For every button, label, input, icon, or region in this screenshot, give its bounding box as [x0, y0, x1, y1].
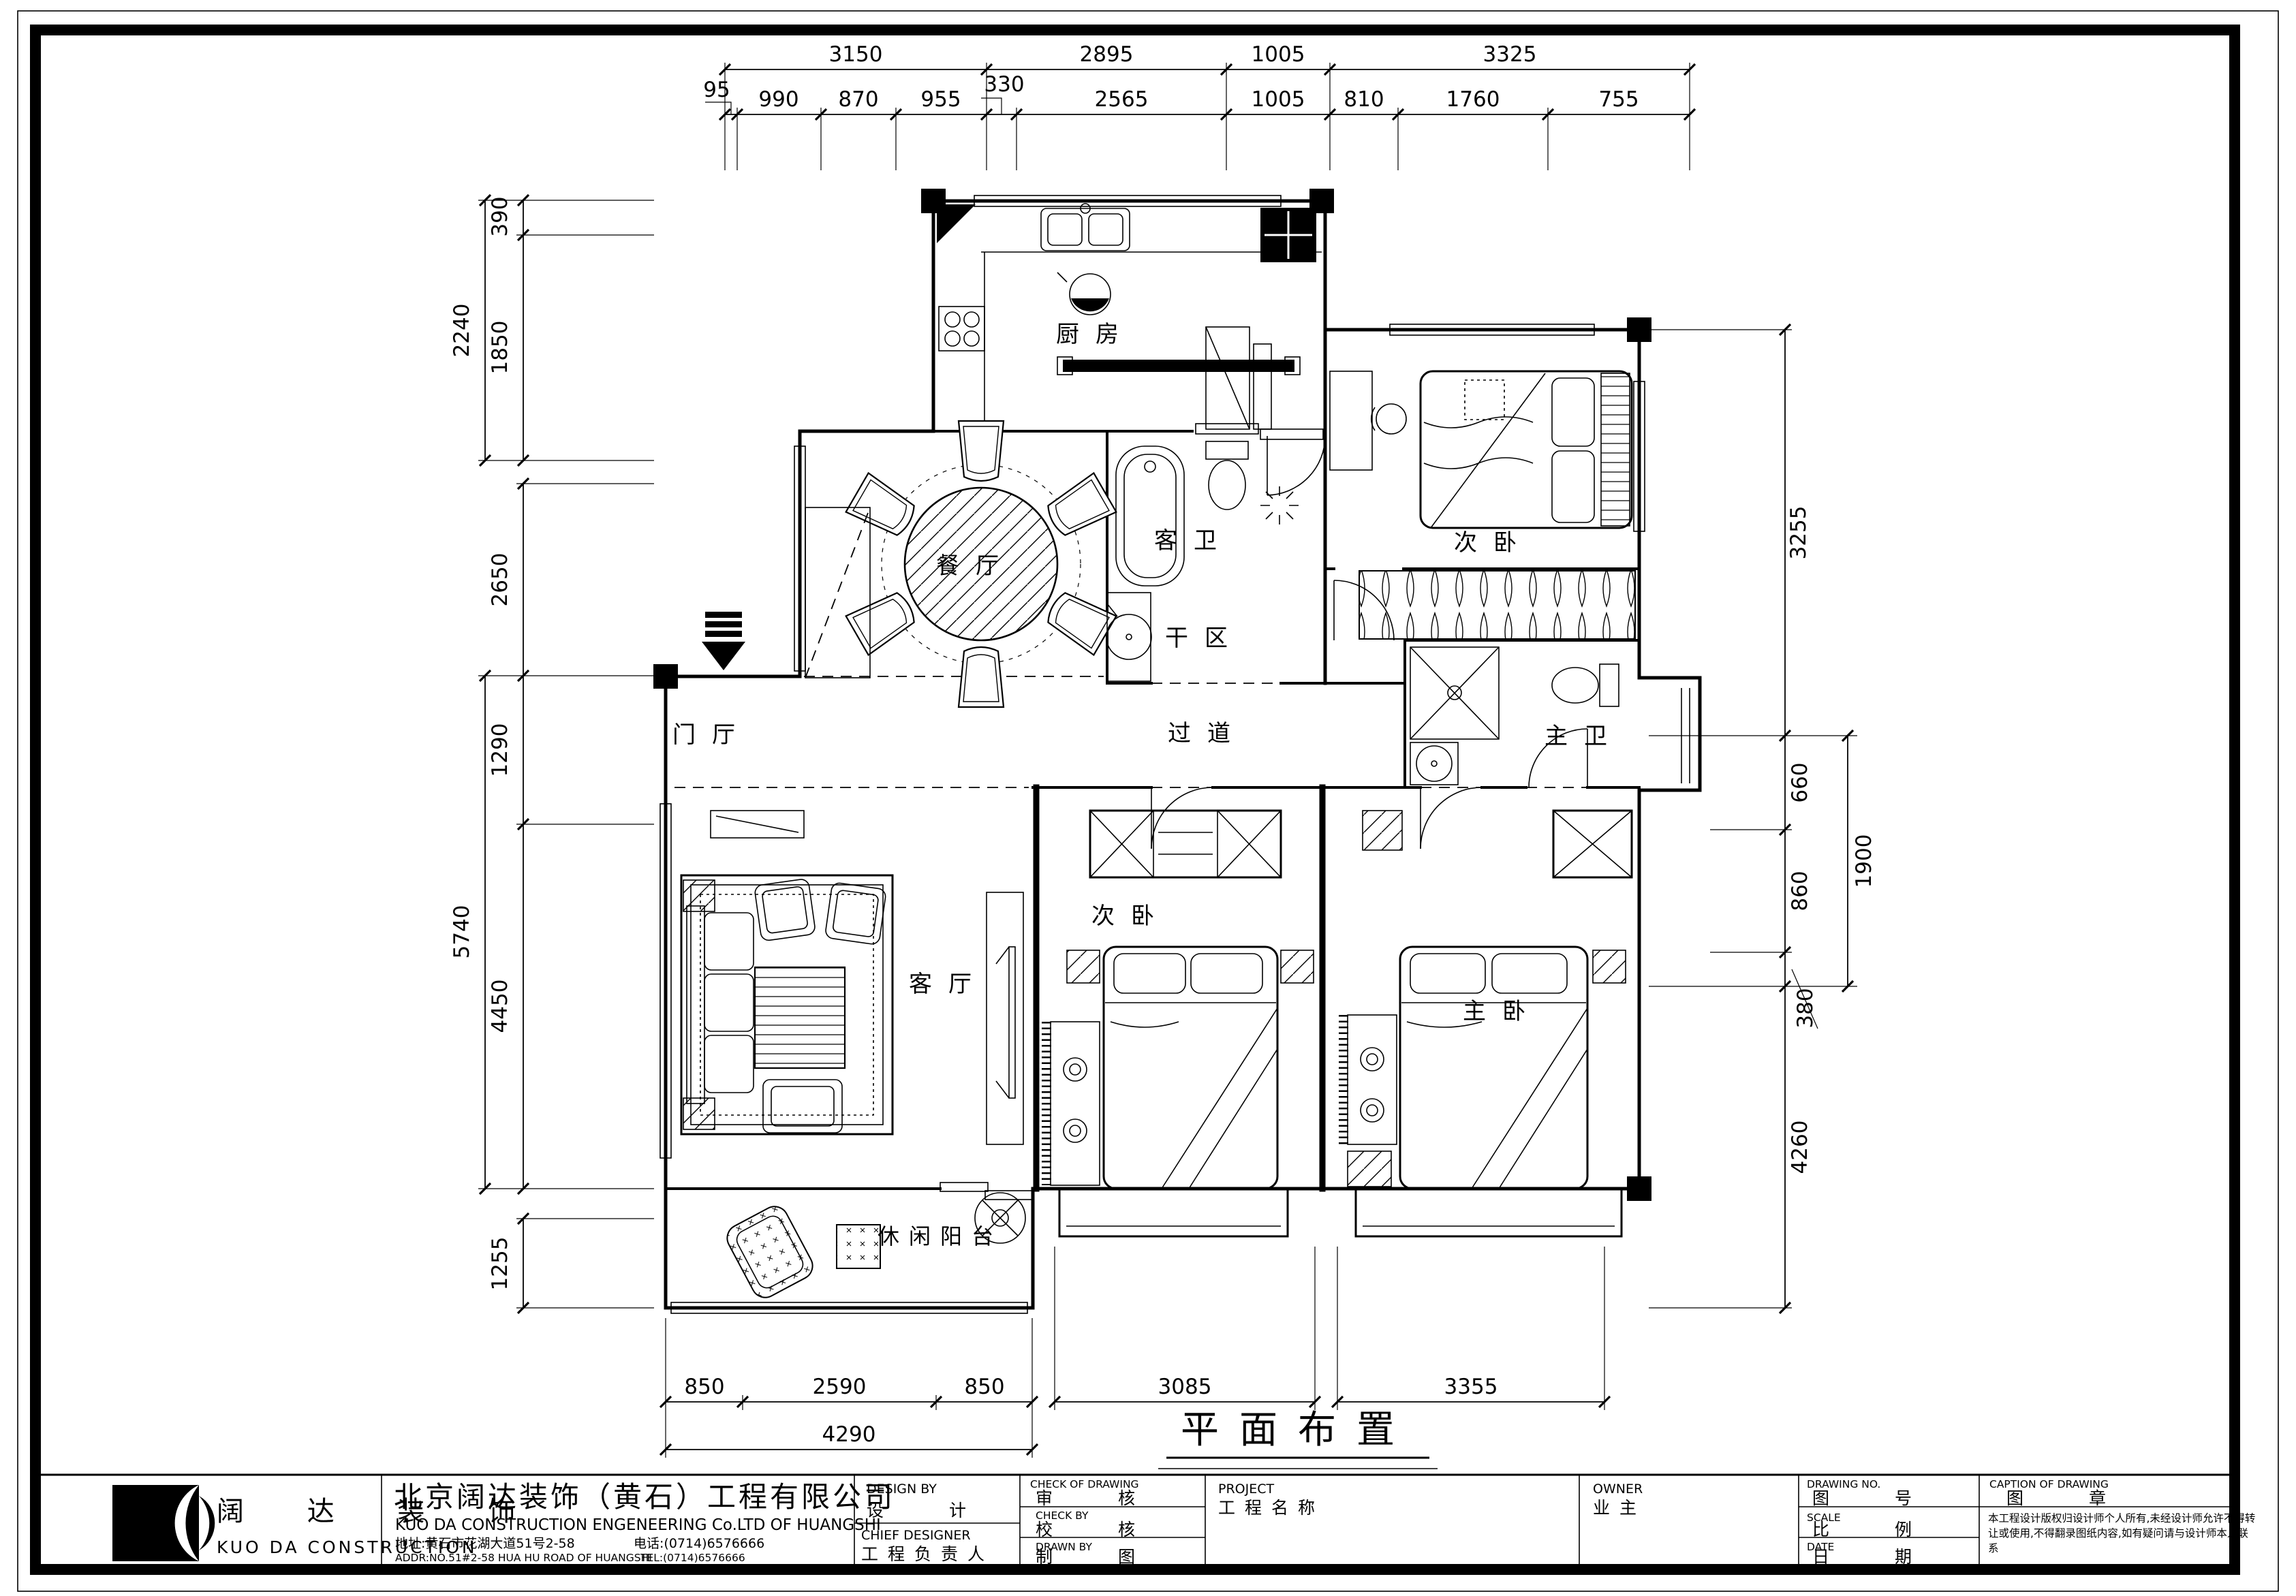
room-label-master-bath: 主卫: [1545, 723, 1624, 750]
sink-icon: [1041, 204, 1130, 251]
toilet-icon: [1206, 441, 1248, 510]
counter-bar: [1057, 357, 1300, 375]
dim-label: 810: [1344, 87, 1384, 112]
dim-label: 3085: [1158, 1375, 1212, 1399]
bathtub-icon: [1116, 446, 1184, 586]
dining-chair: [1042, 473, 1116, 542]
sliding-door-kitchen: [1196, 424, 1323, 439]
dim-label: 4290: [822, 1422, 876, 1447]
dim-label: 3325: [1483, 42, 1537, 67]
wardrobe: [1553, 811, 1632, 877]
console-cabinet: [711, 811, 804, 838]
side-table: [837, 1225, 880, 1268]
company-address-cn: 地址:黄石市花湖大道51号2-58: [395, 1536, 575, 1551]
entry-arrow-icon: [702, 612, 745, 670]
dim-label: 1290: [488, 723, 512, 777]
dim-label: 870: [838, 87, 878, 112]
company-phone-en: TEL:(0714)6576666: [640, 1552, 745, 1564]
room-label-master-bedroom: 主卧: [1463, 998, 1542, 1025]
dim-label: 850: [964, 1375, 1004, 1399]
chief-designer-label-en: CHIEF DESIGNER: [861, 1528, 971, 1543]
dim-label: 860: [1788, 871, 1812, 911]
dim-label: 1005: [1252, 87, 1305, 112]
check-of-drawing-label-cn: 审 核: [1036, 1488, 1165, 1508]
exterior-walls: [653, 189, 1700, 1308]
fringe-rug: [1046, 1022, 1100, 1185]
cooktop-icon: [939, 307, 984, 351]
room-label-hallway: 过道: [1168, 720, 1247, 747]
dim-label: 2565: [1095, 87, 1149, 112]
company-phone-cn: 电话:(0714)6576666: [634, 1536, 764, 1551]
nightstand: [1363, 811, 1402, 850]
dining-chair: [959, 421, 1004, 481]
door-master-bedroom: [1421, 787, 1482, 849]
shower-icon: [1410, 647, 1499, 739]
disclaimer-line2: 让或使用,不得翻录图纸内容,如有疑问请与设计师本人联: [1988, 1527, 2248, 1539]
disclaimer-line3: 系: [1988, 1542, 1999, 1554]
door-bedroom-south: [1151, 787, 1213, 849]
owner-label-cn: 业主: [1593, 1498, 1646, 1518]
dimensions-top: 3150 2895 1005 3325 95 990 870 955 330 2…: [703, 42, 1690, 170]
toilet-icon: [1552, 664, 1619, 706]
window-balcony: [671, 1302, 1027, 1313]
scale-label-cn: 比 例: [1812, 1520, 1942, 1539]
bench: [1348, 1151, 1391, 1187]
dim-label: 390: [488, 196, 512, 236]
lounge-chair: [722, 1202, 817, 1302]
dim-label: 3255: [1786, 506, 1811, 560]
room-label-bedroom-ne: 次卧: [1454, 529, 1533, 557]
dim-label: 330: [984, 72, 1024, 97]
window-kitchen: [974, 195, 1281, 206]
company-name-cn: 北京阔达装饰（黄石）工程有限公司: [394, 1480, 895, 1514]
project-label-cn: 工程名称: [1218, 1498, 1324, 1518]
dim-label: 2240: [450, 304, 474, 358]
caption-of-drawing-label-cn: 图 章: [2006, 1488, 2136, 1508]
room-label-living: 客厅: [909, 971, 988, 998]
window-bedroom-ne-right: [1634, 381, 1645, 531]
date-label-cn: 日 期: [1812, 1547, 1942, 1567]
nightstand: [1067, 950, 1100, 983]
coffee-table: [755, 967, 845, 1068]
dim-label: 1005: [1252, 42, 1305, 67]
owner-label-en: OWNER: [1593, 1482, 1643, 1497]
floor-plan-canvas: 3150 2895 1005 3325 95 990 870 955 330 2…: [0, 0, 2296, 1596]
dim-label: 2895: [1080, 42, 1134, 67]
bed-master: [1400, 947, 1587, 1189]
drawn-by-label-cn: 制 图: [1036, 1547, 1165, 1567]
dim-label: 1255: [488, 1237, 512, 1291]
dim-label: 990: [758, 87, 798, 112]
bay-window-master: [1356, 1189, 1622, 1236]
bedroom-ne-furniture: [1330, 371, 1635, 639]
dim-label: 4260: [1788, 1121, 1812, 1174]
dim-label: 1760: [1446, 87, 1500, 112]
drawing-caption: 平面布置: [1158, 1408, 1438, 1469]
chief-designer-label-cn: 工程负责人: [861, 1544, 994, 1564]
company-name-en: KUO DA CONSTRUCTION ENGENEERING Co.LTD O…: [395, 1516, 881, 1534]
extension-lines-right: [1649, 330, 1857, 1308]
window-living: [660, 804, 671, 1158]
door-guest-bath: [1267, 436, 1325, 495]
dim-label: 1900: [1852, 834, 1876, 888]
dining-chair: [1042, 586, 1116, 655]
dim-label: 2650: [488, 553, 512, 607]
room-label-guest-bath: 客卫: [1154, 527, 1233, 554]
caption-title: 平面布置: [1181, 1408, 1415, 1452]
dimensions-bottom: 850 2590 850 3085 3355 4290: [666, 1247, 1604, 1458]
basin-icon: [1410, 742, 1458, 785]
room-label-kitchen: 厨房: [1056, 321, 1135, 348]
dining-chair: [846, 586, 920, 655]
page-border: [18, 11, 2278, 1591]
design-by-label-cn: 设 计: [867, 1501, 996, 1520]
drawing-no-label-cn: 图 号: [1812, 1488, 1942, 1508]
dim-label: 660: [1788, 762, 1812, 802]
room-label-bedroom-south: 次卧: [1091, 903, 1170, 930]
dining-cabinet: [805, 507, 870, 678]
dim-label: 380: [1793, 988, 1818, 1028]
room-label-dry-area: 干区: [1165, 625, 1244, 652]
title-block: 阔 达 装 饰 KUO DA CONSTRUCTION 北京阔达装饰（黄石）工程…: [41, 1475, 2255, 1567]
room-label-dining: 餐厅: [936, 552, 1015, 580]
dim-label: 955: [920, 87, 961, 112]
dim-label: 850: [684, 1375, 724, 1399]
project-label-en: PROJECT: [1218, 1482, 1274, 1497]
tv-wall: [987, 892, 1023, 1144]
room-label-balcony: 休闲阳台: [878, 1223, 1003, 1249]
ceiling-light-icon: [1260, 486, 1299, 525]
bed-south: [1104, 947, 1277, 1189]
nightstand: [1593, 950, 1626, 983]
wardrobe: [1090, 811, 1281, 877]
company-logo: [112, 1485, 215, 1561]
nightstand: [1281, 950, 1314, 983]
dim-label: 3150: [829, 42, 883, 67]
drawing-sheet: 3150 2895 1005 3325 95 990 870 955 330 2…: [0, 0, 2296, 1596]
tall-cabinet: [1206, 327, 1271, 429]
extension-lines-bottom: [666, 1247, 1604, 1458]
dim-label: 4450: [488, 980, 512, 1033]
dim-label: 5740: [450, 905, 474, 959]
fringe-rug: [1344, 1015, 1397, 1144]
kitchen-fixtures: [937, 204, 1322, 431]
dining-chair: [959, 647, 1004, 707]
dry-area-basin: [1106, 593, 1151, 681]
desk: [1330, 371, 1406, 470]
flue-icon: [937, 204, 976, 243]
extension-lines-top: [725, 63, 1690, 170]
disclaimer-line1: 本工程设计版权归设计师个人所有,未经设计师允许不得转: [1988, 1512, 2255, 1524]
window-bedroom-ne-top: [1390, 324, 1594, 335]
bay-window-bedroom-south: [1059, 1189, 1288, 1236]
fridge-icon: [1260, 208, 1316, 262]
dimensions-right: 3255 660 860 380 1900 4260: [1649, 330, 1876, 1308]
bedroom-south-furniture: [1046, 811, 1314, 1189]
dimensions-left: 390 2240 1850 2650 1290 5740 4450 1255: [450, 196, 654, 1308]
dim-label: 755: [1598, 87, 1639, 112]
dim-label: 1850: [488, 321, 512, 375]
company-address-en: ADDR:NO.51#2-58 HUA HU ROAD OF HUANGSHI: [395, 1552, 652, 1564]
dim-label: 95: [703, 78, 730, 102]
room-label-foyer: 门厅: [672, 721, 751, 749]
window-dining: [794, 446, 805, 671]
bed-ne: [1421, 371, 1632, 528]
check-by-label-cn: 校 核: [1036, 1520, 1165, 1539]
side-table: [683, 1098, 715, 1129]
wok-icon: [1057, 272, 1111, 315]
dim-label: 3355: [1444, 1375, 1498, 1399]
wardrobe-hangers: [1359, 571, 1635, 639]
design-by-label-en: DESIGN BY: [867, 1482, 937, 1497]
dim-label: 2590: [813, 1375, 867, 1399]
side-table: [683, 880, 715, 911]
